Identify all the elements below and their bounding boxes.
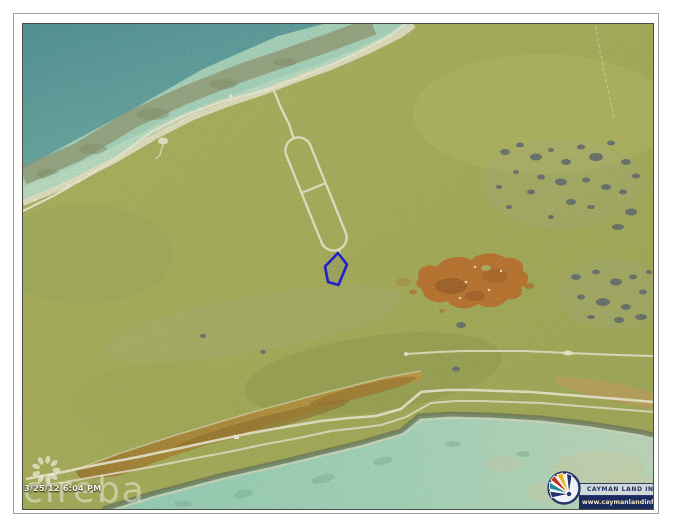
aerial-photo-art [23, 24, 653, 509]
cayman-land-info-name: CAYMAN LAND INFO [579, 483, 654, 496]
cayman-land-info-logo: CAYMAN LAND INFO www.caymanlandinfo.ky [543, 464, 653, 509]
aerial-photo[interactable]: cireba 3/25/12 6:04 PM CAYMAN LAND INFO … [22, 23, 654, 510]
framed-listing-photo: cireba 3/25/12 6:04 PM CAYMAN LAND INFO … [0, 0, 675, 529]
cayman-land-info-fan-icon [546, 469, 582, 507]
cayman-land-info-url: www.caymanlandinfo.ky [579, 496, 654, 509]
photo-timestamp: 3/25/12 6:04 PM [24, 484, 101, 493]
